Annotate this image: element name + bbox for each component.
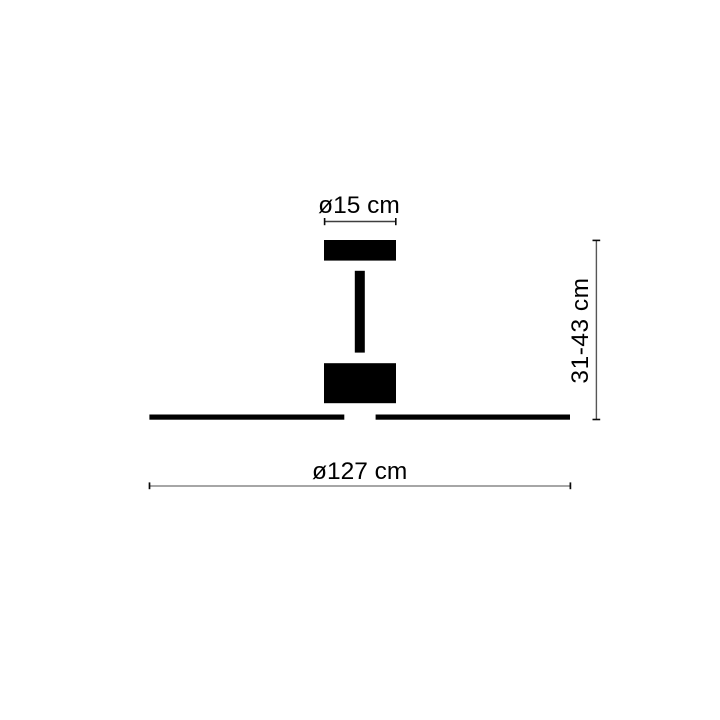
svg-text:31-43 cm: 31-43 cm [567, 277, 594, 383]
svg-text:ø127 cm: ø127 cm [312, 458, 407, 485]
svg-text:ø15 cm: ø15 cm [318, 192, 400, 219]
